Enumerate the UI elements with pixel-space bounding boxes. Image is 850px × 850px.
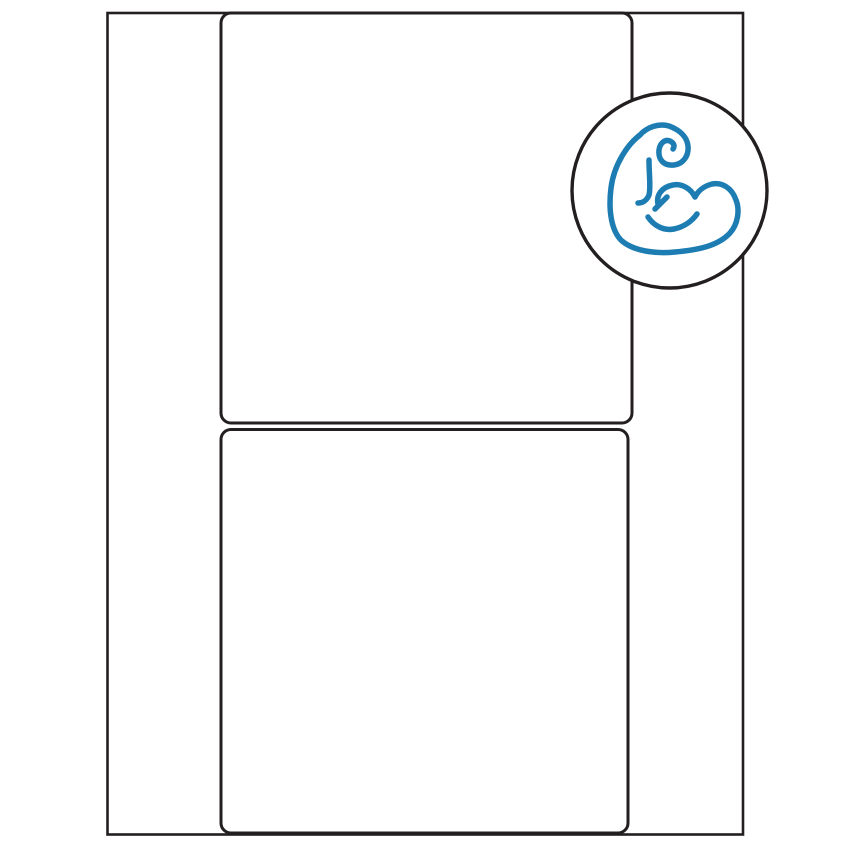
badge-circle	[572, 93, 767, 288]
label-sheet-template-preview	[0, 0, 850, 850]
category-badge	[572, 93, 767, 288]
template-diagram	[0, 0, 850, 850]
